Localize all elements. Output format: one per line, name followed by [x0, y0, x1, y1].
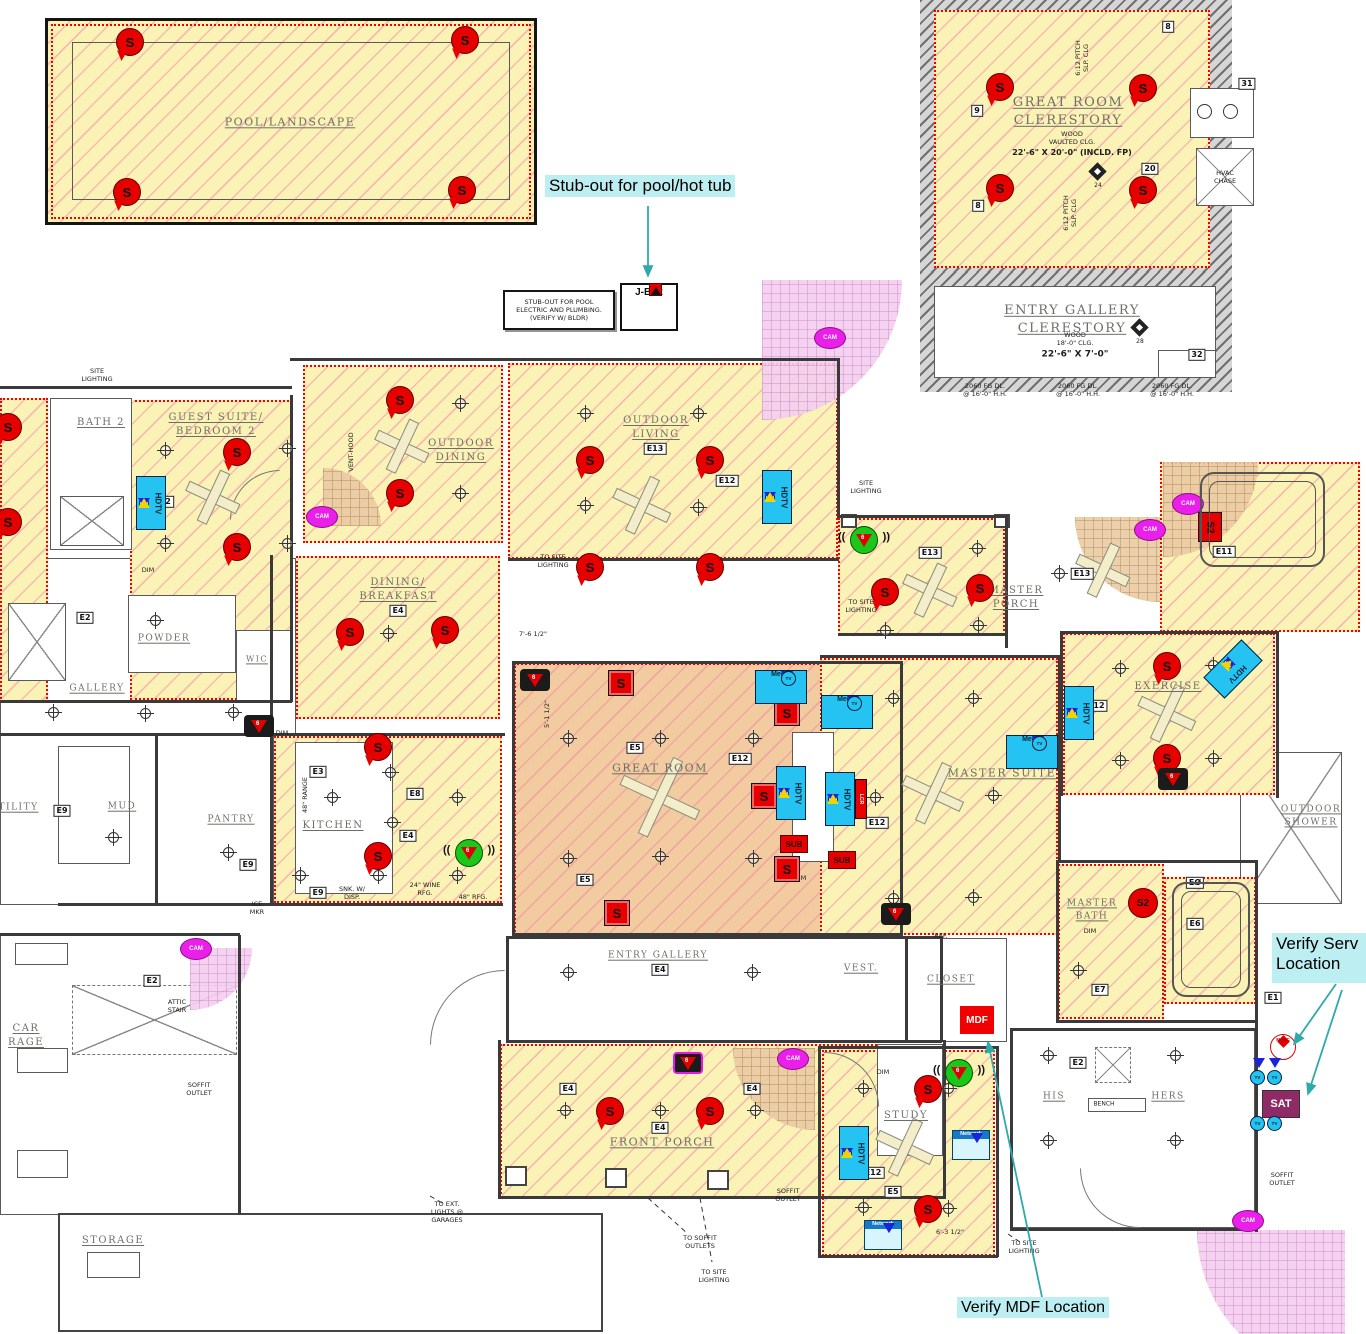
plan-note: DIM	[877, 1068, 890, 1076]
red-triangle-icon: 6	[461, 847, 477, 860]
circuit-label: E12	[729, 753, 752, 765]
speaker-icon: S	[1129, 176, 1157, 204]
hdtv-outlet-icon: HDTV	[839, 1126, 869, 1180]
wall-segment	[506, 936, 942, 939]
circuit-label: E13	[644, 443, 667, 455]
plan-note: TO SITE LIGHTING	[537, 553, 568, 569]
subwoofer-icon: SUB	[780, 835, 808, 853]
wall-segment	[1005, 515, 1008, 648]
ceiling-light-icon	[1170, 1050, 1181, 1061]
wall-segment	[940, 936, 943, 1042]
wall-segment	[943, 1040, 946, 1198]
tv-icon: TV	[1267, 1070, 1282, 1085]
volume-keypad-icon: 6	[1158, 768, 1188, 790]
volume-number: 6	[1170, 774, 1173, 780]
yellow-triangle-icon	[841, 1148, 853, 1158]
media-outlet-icon: MediaTVTV	[1006, 735, 1058, 769]
blue-triangle-icon	[883, 1223, 895, 1233]
room-label: POOL/LANDSCAPE	[225, 114, 355, 129]
wall-segment	[1010, 1228, 1258, 1231]
ceiling-light-icon	[943, 1203, 954, 1214]
ceiling-light-icon	[282, 538, 293, 549]
volume-control-icon: 6	[945, 1059, 973, 1087]
plan-note: 6:12 PITCH SLP. CLG	[1074, 40, 1090, 76]
ceiling-light-icon	[880, 625, 891, 636]
wall-segment	[506, 936, 509, 1042]
ceiling-light-icon	[563, 853, 574, 864]
room-label: STORAGE	[82, 1234, 144, 1248]
plan-note: WOOD VAULTED CLG.	[1049, 130, 1095, 146]
wall-segment	[498, 1040, 501, 1198]
hdtv-label-wrap: HDTV	[776, 471, 791, 523]
tv-icon: TV	[1250, 1070, 1265, 1085]
hdtv-label-wrap: HDTV	[839, 773, 854, 825]
plan-note: SNK. W/ DISP.	[339, 885, 365, 901]
tv-pair: TVTV	[1250, 1070, 1282, 1085]
camera-view-quarter	[762, 280, 902, 420]
plan-note: HVAC CHASE	[1214, 169, 1236, 185]
speaker-icon: S	[1129, 74, 1157, 102]
volume-keypad-icon: 6	[520, 669, 550, 691]
room-label: STUDY	[884, 1109, 928, 1123]
porch-column-1	[505, 1166, 527, 1186]
speaker-icon: S	[596, 1097, 624, 1125]
circuit-label: E5	[626, 742, 643, 754]
wall-segment	[837, 358, 840, 518]
triangle-pair	[1253, 1058, 1281, 1068]
volume-number: 6	[956, 1068, 959, 1074]
ceiling-light-icon	[580, 500, 591, 511]
plan-note: 7'-6 1/2"	[519, 630, 547, 638]
room-label: UTILITY	[0, 802, 39, 815]
speaker-icon: S	[223, 438, 251, 466]
speaker-icon: S	[966, 574, 994, 602]
camera-view-quarter	[1197, 1230, 1345, 1334]
ceiling-light-icon	[160, 538, 171, 549]
plan-note: 48" RANGE	[301, 777, 309, 813]
sconce-icon	[1223, 104, 1238, 119]
speaker-icon: S	[914, 1075, 942, 1103]
plan-note: WOOD 18'-0" CLG.	[1057, 331, 1094, 347]
ceiling-light-icon	[383, 628, 394, 639]
ceiling-light-icon	[748, 853, 759, 864]
ceiling-light-icon	[160, 445, 171, 456]
plan-note: 48" RFG.	[459, 893, 488, 901]
ceiling-light-icon	[1073, 965, 1084, 976]
dim-box-label: 20	[1141, 163, 1158, 175]
room-label: CAR RAGE	[8, 1022, 44, 1050]
room-label: CLOSET	[927, 974, 975, 987]
room-label: GUEST SUITE/ BEDROOM 2	[169, 411, 264, 439]
plan-note: 2060 FG DL. @ 16'-0" H.H.	[1056, 382, 1100, 398]
mdf-box: MDF	[960, 1006, 994, 1034]
hdtv-outlet-icon: HDTV	[776, 766, 806, 820]
speaker-icon: S	[914, 1195, 942, 1223]
volume-number: 6	[256, 721, 259, 727]
room-label: OUTDOOR LIVING	[623, 414, 689, 442]
porch-column-3	[707, 1170, 729, 1190]
speaker-s2-icon: S2	[1128, 888, 1158, 918]
hdtv-label-wrap: HDTV	[1078, 687, 1093, 739]
room-label: OUTDOOR DINING	[428, 437, 494, 465]
room-label: GALLERY	[69, 683, 124, 696]
ceiling-light-icon	[972, 543, 983, 554]
tv-icon: TV	[781, 671, 796, 686]
red-triangle-icon: 6	[527, 674, 543, 687]
room-label: DINING/ BREAKFAST	[359, 576, 436, 604]
room-label: VEST.	[844, 963, 878, 976]
electrical-av-floor-plan: POOL/LANDSCAPEGREAT ROOM CLERESTORYENTRY…	[0, 0, 1366, 1334]
ceiling-light-icon	[858, 1083, 869, 1094]
volume-control-icon: 6	[850, 526, 878, 554]
speaker-icon: S	[223, 533, 251, 561]
circuit-label: E9	[239, 859, 256, 871]
ceiling-light-icon	[1208, 753, 1219, 764]
wall-segment	[996, 1046, 999, 1257]
bath2-shower	[60, 496, 124, 546]
speaker-icon: S	[986, 73, 1014, 101]
room-label: BATH 2	[77, 416, 125, 430]
room-label: PANTRY	[207, 814, 254, 827]
room-label: FRONT PORCH	[610, 1134, 715, 1149]
speaker-icon: S	[576, 553, 604, 581]
red-triangle-icon: 6	[1165, 773, 1181, 786]
wall-segment	[1060, 631, 1279, 634]
ceiling-light-icon	[973, 620, 984, 631]
marc-label: MARC	[1276, 1037, 1290, 1042]
hdtv-label-wrap: HDTV	[790, 767, 805, 819]
ceiling-light-icon	[373, 870, 384, 881]
circuit-label: E2	[1069, 1057, 1086, 1069]
volume-keypad-icon: 6	[673, 1052, 703, 1074]
yellow-triangle-icon	[827, 794, 839, 804]
subwoofer-icon: SUB	[828, 851, 856, 869]
ceiling-light-icon	[452, 870, 463, 881]
ceiling-light-icon	[563, 733, 574, 744]
tv-icon: TV	[1267, 1116, 1282, 1131]
plan-note: SOFFIT OUTLET	[186, 1081, 212, 1097]
speaker-icon: S	[364, 842, 392, 870]
plan-note: ICE MKR	[250, 900, 264, 916]
wall-segment	[1056, 860, 1059, 1023]
speaker-square-icon: S	[774, 856, 800, 882]
media-outlet-icon: MediaTVTV	[755, 670, 807, 704]
camera-icon: CAM	[1232, 1210, 1264, 1232]
speaker-icon: S	[336, 618, 364, 646]
wall-segment	[1010, 1028, 1258, 1031]
room-label: HIS	[1043, 1091, 1065, 1104]
dim-box-label: 8	[1162, 21, 1174, 33]
plan-note: ATTIC STAIR	[168, 998, 186, 1014]
ceiling-light-icon	[1054, 568, 1065, 579]
room-label: POWDER	[138, 633, 190, 646]
wall-segment	[1010, 1028, 1013, 1230]
volume-keypad-icon: 6	[244, 715, 274, 737]
wall-segment	[512, 933, 902, 936]
circuit-label: E12	[866, 817, 889, 829]
ceiling-light-icon	[452, 792, 463, 803]
blue-triangle-icon	[1269, 1058, 1281, 1068]
hdtv-label: HDTV	[856, 1142, 865, 1164]
room-label: WIC	[246, 653, 268, 664]
red-triangle-icon: 6	[251, 720, 267, 733]
tv-icon: TV	[847, 696, 862, 711]
plan-note: TO SOFFIT OUTLETS	[683, 1234, 717, 1250]
speaker-square-icon: S	[751, 783, 777, 809]
lcr-label: LCR	[858, 794, 864, 804]
room-label: EXERCISE	[1135, 680, 1202, 694]
volume-number: 6	[893, 909, 896, 915]
diamond-number: 28	[1136, 338, 1144, 345]
room-label: OUTDOOR SHOWER	[1281, 803, 1341, 828]
ceiling-light-icon	[563, 967, 574, 978]
porch-column-2	[605, 1168, 627, 1188]
ceiling-light-icon	[870, 792, 881, 803]
hdtv-label: HDTV	[842, 788, 851, 810]
hdtv-icons	[826, 773, 839, 825]
hdtv-label: HDTV	[153, 492, 162, 514]
wall-segment	[1276, 631, 1279, 798]
speaker-icon: S	[431, 616, 459, 644]
circuit-label: E4	[651, 964, 668, 976]
plan-note: DIM	[276, 729, 289, 737]
circuit-label: E4	[743, 1083, 760, 1095]
circuit-label: E9	[53, 805, 70, 817]
plan-note: 24" WINE RFG.	[410, 881, 441, 897]
tv-pair: TVTV	[1250, 1116, 1282, 1131]
plan-note: 6:12 PITCH SLP. CLG	[1062, 195, 1078, 231]
red-square-icon	[649, 283, 662, 296]
tub-shape	[1172, 882, 1250, 997]
dim-box-label: 9	[971, 105, 983, 117]
speaker-icon: S	[113, 178, 141, 206]
room-label: MUD	[108, 801, 137, 814]
wall-segment	[1056, 860, 1258, 863]
hdtv-label: HDTV	[779, 486, 788, 508]
ceiling-light-icon	[747, 967, 758, 978]
ceiling-light-icon	[858, 1202, 869, 1213]
speaker-icon: S	[386, 386, 414, 414]
ceiling-light-icon	[48, 707, 59, 718]
circuit-label: E5	[884, 1186, 901, 1198]
plan-note: REF.	[934, 932, 947, 940]
hdtv-label: HDTV	[793, 782, 802, 804]
pool-jbox: J-Box	[620, 283, 678, 331]
ceiling-light-icon	[1043, 1135, 1054, 1146]
volume-number: 6	[685, 1058, 688, 1064]
room-label: GREAT ROOM	[612, 760, 708, 775]
wall-segment	[1056, 1020, 1258, 1023]
room-label: GREAT ROOM CLERESTORY	[1013, 94, 1124, 130]
callout-pool-stub: Stub-out for pool/hot tub	[545, 175, 735, 197]
camera-icon: CAM	[814, 327, 846, 349]
ceiling-light-icon	[282, 443, 293, 454]
hdtv-outlet-icon: HDTV	[136, 476, 166, 530]
master-bath	[1058, 864, 1164, 1019]
wall-segment	[1058, 655, 1061, 863]
circuit-label: E2	[76, 612, 93, 624]
room-label: ENTRY GALLERY	[608, 950, 708, 963]
hdtv-icons	[137, 477, 150, 529]
tv-icon: TV	[1250, 1116, 1265, 1131]
ceiling-light-icon	[580, 408, 591, 419]
circuit-label: E5	[576, 874, 593, 886]
tv-icon: TV	[1032, 736, 1047, 751]
hdtv-icons	[840, 1127, 853, 1179]
circuit-label: E4	[399, 830, 416, 842]
room-label: MASTER BATH	[1067, 897, 1117, 922]
wall-segment	[58, 903, 503, 906]
blue-triangle-icon	[1253, 1058, 1265, 1068]
wall-segment	[837, 515, 1008, 518]
ceiling-light-icon	[455, 488, 466, 499]
yellow-triangle-icon	[1066, 708, 1078, 718]
volume-number: 6	[466, 848, 469, 854]
blue-triangle-icon	[971, 1133, 983, 1143]
car-stall-1	[15, 943, 68, 965]
volume-control-icon: 6	[455, 839, 483, 867]
circuit-label: E13	[1071, 568, 1094, 580]
wall-segment	[506, 1040, 942, 1043]
plan-note: DIM	[1084, 927, 1097, 935]
ceiling-light-icon	[1115, 755, 1126, 766]
ceiling-light-icon	[988, 790, 999, 801]
camera-icon: CAM	[180, 938, 212, 960]
circuit-label: E7	[1091, 984, 1108, 996]
plan-note: SITE LIGHTING	[850, 479, 881, 495]
camera-icon: CAM	[777, 1048, 809, 1070]
wic-room	[236, 630, 292, 702]
speaker-icon: S	[386, 479, 414, 507]
camera-icon: CAM	[1134, 519, 1166, 541]
plan-note: 22'-6" X 20'-0" (INCLD. FP)	[1012, 148, 1132, 158]
ceiling-light-icon	[968, 693, 979, 704]
circuit-label: E2	[143, 975, 160, 987]
wall-segment	[498, 1196, 946, 1199]
yellow-triangle-icon	[778, 788, 790, 798]
plan-note: BENCH	[1093, 1100, 1114, 1108]
ceiling-light-icon	[655, 851, 666, 862]
ceiling-light-icon	[1043, 1050, 1054, 1061]
speaker-icon: S	[576, 446, 604, 474]
ceiling-light-icon	[693, 408, 704, 419]
plan-note: TO EXT. LIGHTS @ GARAGES	[431, 1200, 463, 1224]
room-label: HERS	[1151, 1091, 1184, 1104]
yellow-triangle-icon	[138, 498, 150, 508]
volume-number: 6	[532, 675, 535, 681]
circuit-label: E8	[406, 788, 423, 800]
ceiling-light-icon	[1115, 663, 1126, 674]
red-triangle-icon: 6	[856, 534, 872, 547]
red-triangle-icon: 6	[680, 1057, 696, 1070]
red-triangle-icon: 6	[888, 908, 904, 921]
yellow-triangle-icon	[764, 492, 776, 502]
speaker-icon: S	[696, 446, 724, 474]
car-stall-2	[17, 1048, 68, 1073]
gallery-skylight	[8, 603, 66, 681]
circuit-label: E13	[919, 547, 942, 559]
plan-note: 22'-6" X 7'-0"	[1042, 349, 1109, 360]
ceiling-light-icon	[150, 615, 161, 626]
door-swing-arc	[430, 970, 505, 1045]
callout-verify-service: Verify Serv Location	[1272, 933, 1366, 983]
callout-verify-mdf: Verify MDF Location	[957, 1297, 1109, 1318]
wall-segment	[0, 933, 240, 936]
ceiling-light-icon	[748, 733, 759, 744]
ceiling-light-icon	[327, 792, 338, 803]
speaker-icon: S	[448, 176, 476, 204]
ceiling-light-icon	[750, 1105, 761, 1116]
dim-box-label: 31	[1238, 78, 1255, 90]
wall-segment	[1255, 860, 1258, 1023]
wall-segment	[512, 661, 515, 937]
ceiling-light-icon	[693, 502, 704, 513]
circuit-label: E4	[389, 605, 406, 617]
sconce-icon	[1197, 104, 1212, 119]
plan-note: SOFFIT OUTLET	[1269, 1171, 1295, 1187]
circuit-label: E4	[651, 1122, 668, 1134]
ceiling-light-icon	[655, 733, 666, 744]
room-label: MASTER PORCH	[989, 584, 1044, 612]
wall-segment	[818, 1255, 998, 1258]
speaker-icon: S	[986, 174, 1014, 202]
satellite-box: SAT	[1262, 1090, 1300, 1118]
plan-note: DIM	[142, 566, 155, 574]
wall-segment	[818, 1046, 821, 1257]
entry-gallery	[506, 936, 942, 1042]
plan-note: 2060 FG DL. @ 16'-0" H.H.	[963, 382, 1007, 398]
plan-note: TO SITE LIGHTING	[1008, 1239, 1039, 1255]
ceiling-light-icon	[1170, 1135, 1181, 1146]
wall-segment	[818, 1046, 998, 1049]
hdtv-icons	[1065, 687, 1078, 739]
plan-note: VENT-HOOD	[347, 432, 355, 471]
dim-box-label: 32	[1188, 349, 1205, 361]
network-outlet-icon: Network	[952, 1130, 990, 1160]
room-label: KITCHEN	[302, 819, 363, 833]
hh-chase-box	[1095, 1047, 1131, 1083]
circuit-label: E12	[716, 475, 739, 487]
wall-segment	[0, 700, 292, 703]
network-outlet-icon: Network	[864, 1220, 902, 1250]
wall-segment	[290, 358, 840, 361]
plan-note: STUB-OUT FOR POOL ELECTRIC AND PLUMBING.…	[516, 298, 602, 322]
speaker-icon: S	[696, 1097, 724, 1125]
wall-segment	[0, 386, 292, 389]
storage-shelf	[87, 1252, 140, 1278]
ceiling-light-icon	[387, 817, 398, 828]
plan-note: 2060 FG DL. @ 16'-0" H.H.	[1150, 382, 1194, 398]
media-outlet-icon: MediaTVTV	[821, 695, 873, 729]
ceiling-light-icon	[108, 832, 119, 843]
hdtv-label-wrap: HDTV	[853, 1127, 868, 1179]
plan-note: SOFFIT OUTLET	[775, 1187, 801, 1203]
hdtv-label-wrap: HDTV	[150, 477, 165, 529]
ceiling-light-icon	[560, 1105, 571, 1116]
ceiling-light-icon	[968, 892, 979, 903]
speaker-square-icon: S	[604, 900, 630, 926]
black-triangle-icon	[651, 287, 661, 295]
hdtv-icons	[777, 767, 790, 819]
hdtv-label: HDTV	[1081, 702, 1090, 724]
speaker-icon: S	[871, 578, 899, 606]
volume-number: 6	[861, 535, 864, 541]
camera-icon: CAM	[306, 506, 338, 528]
ceiling-light-icon	[295, 870, 306, 881]
circuit-label: E3	[309, 766, 326, 778]
plan-note: TO SITE LIGHTING	[698, 1268, 729, 1284]
ceiling-light-icon	[140, 708, 151, 719]
